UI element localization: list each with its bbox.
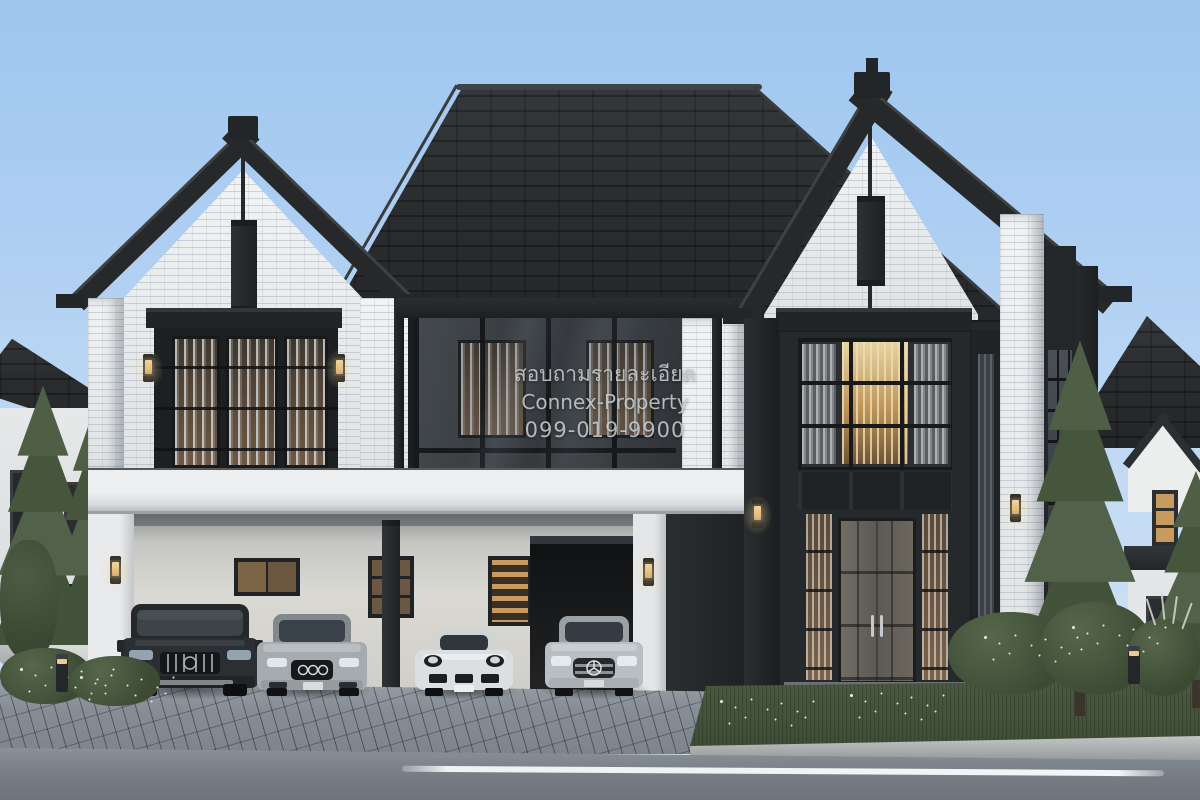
eave-stub — [1098, 286, 1132, 302]
front-double-door — [838, 518, 916, 684]
car-white-sportscar — [412, 628, 516, 696]
door-handle — [880, 615, 883, 637]
window-header-bar — [146, 308, 342, 328]
lawn-flowers — [850, 694, 853, 697]
downpipe — [394, 298, 404, 472]
interior-window — [234, 558, 300, 596]
entrance — [778, 330, 972, 690]
entry-transom — [798, 472, 952, 510]
balcony-fascia — [396, 298, 744, 318]
glass-strip — [978, 354, 994, 654]
lawn-flowers — [720, 700, 723, 703]
entry-sidelight — [922, 514, 948, 680]
carport-post — [382, 520, 400, 692]
bollard-light — [56, 654, 68, 692]
gable-keystone — [231, 220, 257, 312]
entry-header-bar — [776, 308, 972, 330]
watermark-line-phone: 099-019-9900 — [420, 416, 790, 444]
watermark: สอบถามรายละเอียด Connex-Property 099-019… — [420, 360, 790, 444]
roof-ridge — [456, 84, 762, 90]
wall-sconce — [334, 354, 345, 382]
entry-side-wall-dark — [666, 514, 744, 692]
bollard-light — [1128, 646, 1140, 684]
wall-pier — [360, 298, 412, 472]
ceiling-shadow — [134, 514, 672, 526]
wall-sconce — [143, 354, 154, 382]
left-gable-windows — [154, 328, 338, 470]
wall-sconce — [752, 500, 763, 528]
entry-top-glass — [798, 338, 952, 470]
watermark-line-brand: Connex-Property — [420, 388, 790, 416]
carport-fascia — [88, 468, 744, 514]
eave-stub — [56, 294, 84, 308]
bed-flowers — [80, 676, 83, 679]
car-silver-mercedes — [542, 614, 646, 696]
entry-glass-grid — [798, 338, 952, 470]
door-handle — [871, 615, 874, 637]
entry-sidelight — [806, 514, 832, 680]
wall-sconce — [643, 558, 654, 586]
gable-keystone — [857, 196, 885, 286]
architectural-render: สอบถามรายละเอียด Connex-Property 099-019… — [0, 0, 1200, 800]
car-silver-sedan — [254, 612, 370, 696]
bush-flowers — [1072, 626, 1075, 629]
corner-pier — [88, 298, 124, 472]
left-gable-peak-cap — [228, 116, 258, 140]
wall-sconce — [110, 556, 121, 584]
bush — [70, 656, 160, 706]
watermark-line-thai: สอบถามรายละเอียด — [420, 360, 790, 388]
right-gable-peak-cap — [854, 72, 890, 98]
window-grid — [154, 328, 338, 470]
bush-flowers — [984, 636, 987, 639]
shrub-tree — [0, 540, 58, 660]
wine-wall-window — [488, 556, 532, 626]
bed-flowers — [20, 668, 23, 671]
